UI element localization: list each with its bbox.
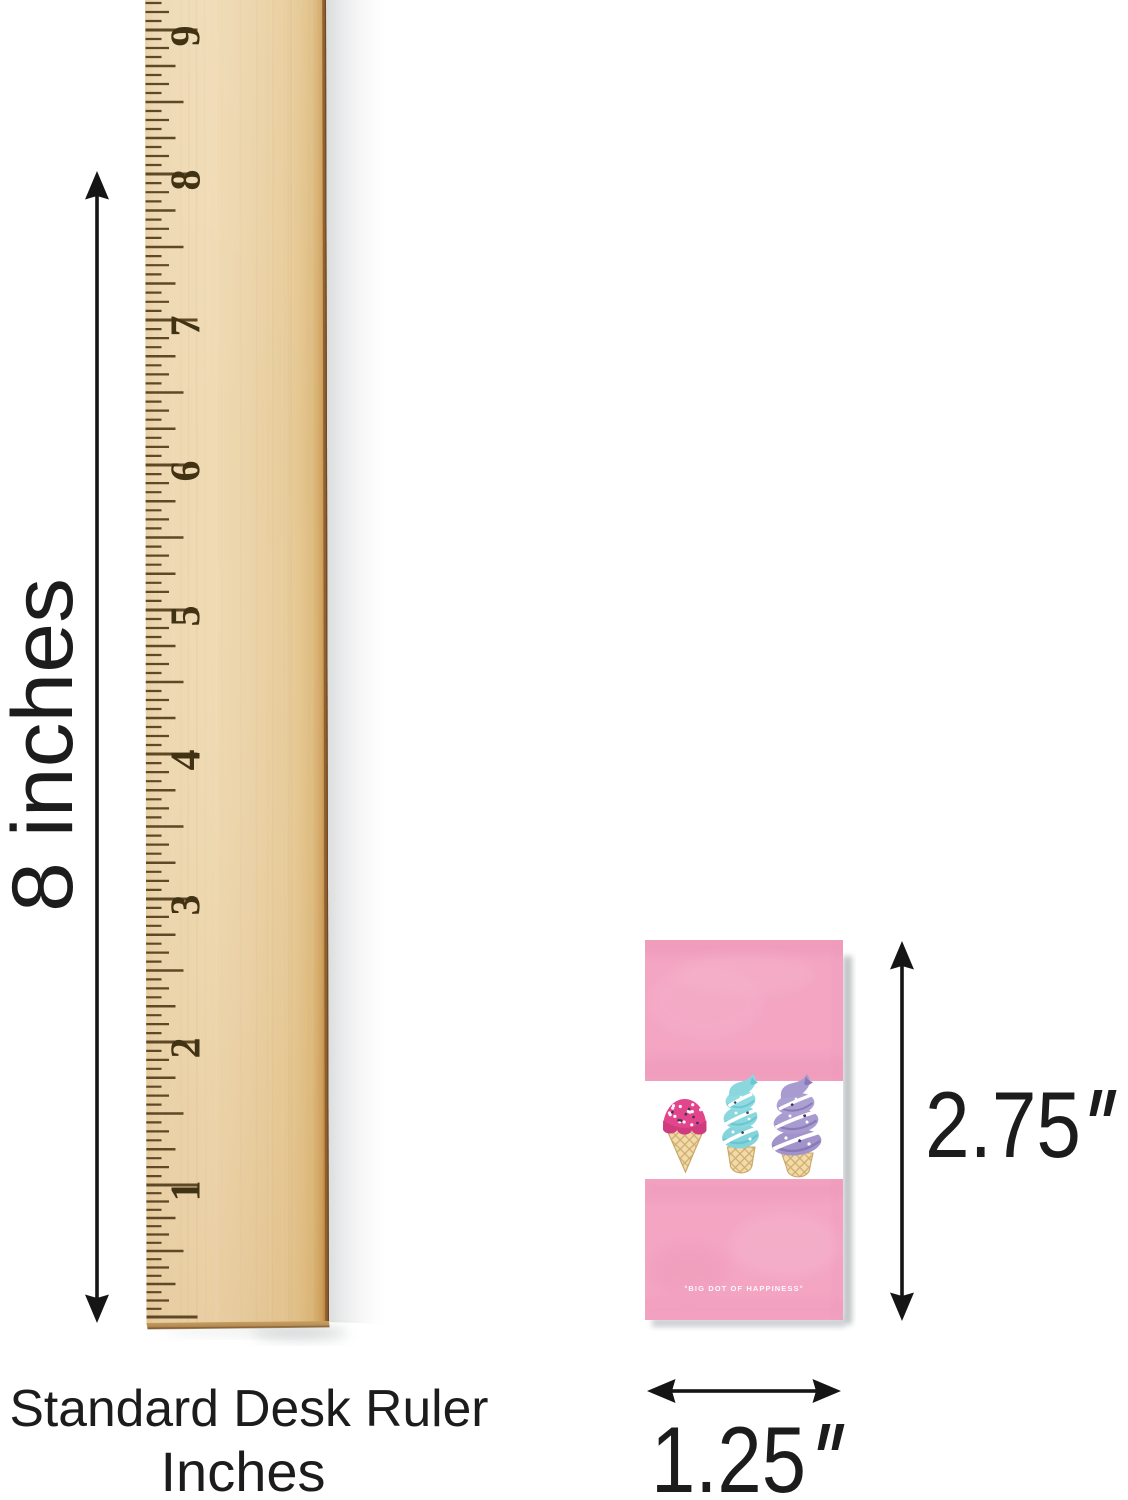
svg-text:6: 6: [164, 461, 210, 482]
svg-text:8: 8: [164, 170, 210, 191]
svg-text:7: 7: [164, 316, 210, 337]
svg-text:2: 2: [164, 1038, 210, 1059]
svg-text:4: 4: [164, 750, 210, 771]
svg-text:Inches: Inches: [161, 1440, 326, 1500]
svg-text:8 inches: 8 inches: [0, 578, 91, 912]
svg-text:5: 5: [164, 606, 210, 627]
svg-text:Standard Desk Ruler: Standard Desk Ruler: [10, 1380, 489, 1438]
svg-text:1.25: 1.25: [651, 1407, 806, 1500]
svg-text:9: 9: [164, 26, 210, 47]
svg-text:°BIG DOT OF HAPPINESS°: °BIG DOT OF HAPPINESS°: [684, 1284, 803, 1293]
svg-text:1: 1: [164, 1181, 210, 1202]
svg-text:2.75: 2.75: [925, 1072, 1081, 1177]
svg-text:3: 3: [164, 895, 210, 916]
